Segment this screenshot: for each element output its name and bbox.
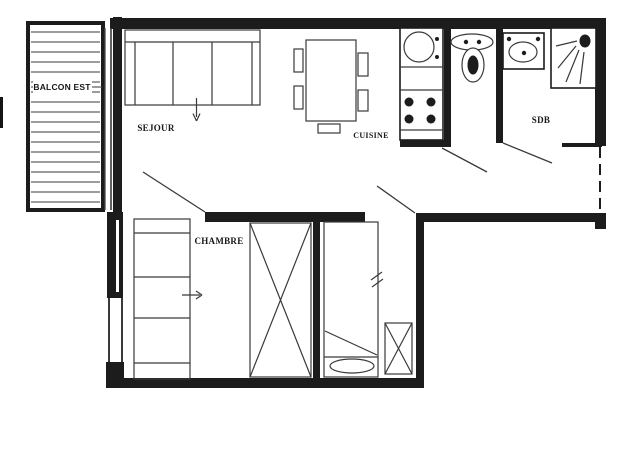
cabin-door-swing-line — [377, 186, 415, 213]
bathroom: SDB — [503, 28, 596, 125]
arrow-right-icon — [182, 291, 202, 299]
wall-corridor-bottom — [418, 213, 606, 222]
toilet-icon — [451, 34, 493, 82]
wardrobe-shelves-icon — [134, 219, 190, 379]
wall-bedroom-top — [205, 212, 365, 222]
wall-counter-bottom — [400, 140, 447, 147]
chair-icon — [358, 90, 368, 111]
chair-icon — [318, 124, 340, 133]
chair-icon — [294, 49, 303, 72]
cabinet-icon — [385, 323, 412, 374]
balcony-window-line-outer — [104, 28, 106, 210]
wall-cabin-left — [313, 212, 320, 387]
balcony: BALCON EST — [28, 23, 103, 210]
wall-top — [110, 18, 606, 29]
doors — [143, 143, 552, 213]
wall-balcony-side — [113, 17, 122, 213]
wall-left-upper — [107, 212, 123, 298]
bedroom-window-line-outer — [108, 298, 110, 362]
living-room-label: SEJOUR — [137, 123, 175, 133]
chair-icon — [294, 86, 303, 109]
bathroom-door-swing-line — [503, 143, 552, 163]
wall-entry-stub — [595, 213, 606, 229]
wall-cabin-right — [416, 213, 424, 387]
bunk-bed-icon — [324, 222, 383, 377]
wall-kitchen-wc — [444, 28, 451, 147]
scan-artifact-mark — [0, 97, 3, 128]
shower-icon — [551, 28, 596, 88]
bedroom-label: CHAMBRE — [194, 236, 243, 246]
floor-plan-drawing: BALCON EST — [0, 0, 620, 465]
sleeping-cabin — [324, 222, 412, 377]
dining-table-icon — [306, 40, 356, 121]
double-bed-icon — [250, 223, 311, 377]
sofa-icon — [125, 30, 260, 105]
balcony-window-line-inner — [110, 28, 112, 210]
bedroom-window-line-inner — [121, 298, 123, 362]
wall-bathroom-bottom — [562, 143, 602, 147]
wall-left-corner — [106, 362, 124, 382]
living-room: SEJOUR — [125, 30, 260, 133]
kitchen: CUISINE — [294, 28, 443, 140]
wc — [451, 34, 493, 82]
kitchen-label: CUISINE — [353, 131, 388, 140]
wc-door-swing-line — [442, 148, 487, 172]
wall-left-window-slit — [116, 220, 119, 292]
kitchen-counter — [400, 28, 443, 140]
chair-icon — [358, 53, 368, 76]
bedroom-door-swing-line — [143, 172, 205, 212]
washbasin-icon — [503, 33, 544, 69]
balcony-label: BALCON EST — [33, 82, 91, 92]
bathroom-label: SDB — [532, 115, 550, 125]
bedroom: CHAMBRE — [134, 219, 311, 379]
wall-wc-bathroom — [496, 28, 503, 143]
floor-plan: BALCON EST — [0, 0, 620, 465]
